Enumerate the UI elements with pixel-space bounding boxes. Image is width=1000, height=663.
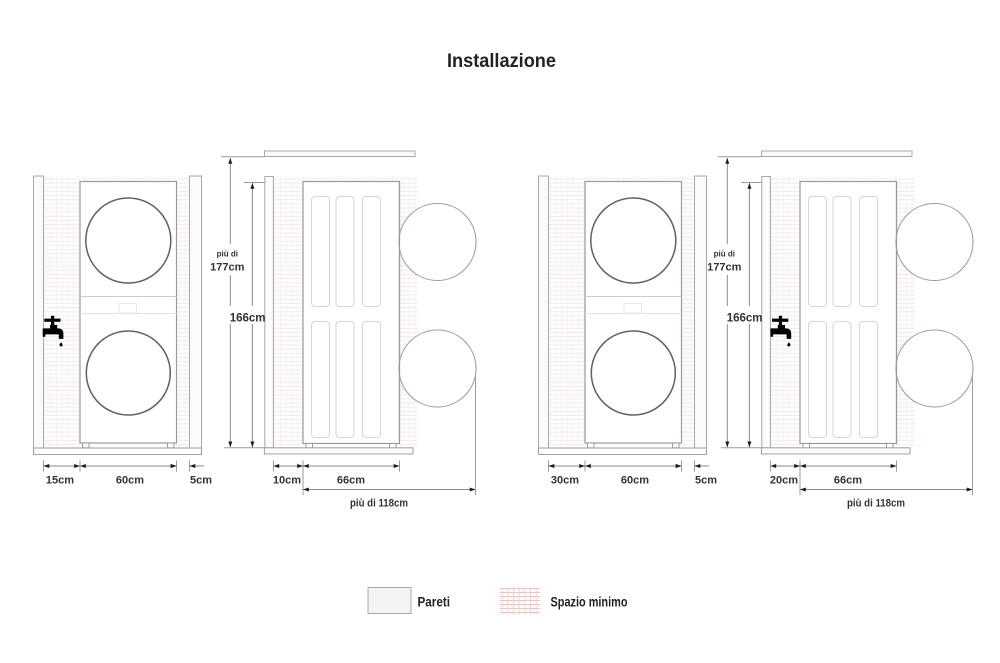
svg-text:20cm: 20cm	[770, 475, 798, 487]
svg-text:60cm: 60cm	[116, 475, 144, 487]
svg-text:66cm: 66cm	[834, 475, 862, 487]
svg-text:30cm: 30cm	[551, 475, 579, 487]
svg-text:166cm: 166cm	[727, 313, 763, 325]
svg-text:177cm: 177cm	[707, 262, 741, 274]
svg-text:più di: più di	[217, 250, 238, 259]
svg-text:Pareti: Pareti	[418, 595, 451, 610]
svg-text:60cm: 60cm	[621, 475, 649, 487]
svg-text:66cm: 66cm	[337, 475, 365, 487]
svg-text:Spazio minimo: Spazio minimo	[551, 595, 628, 610]
svg-text:più di 118cm: più di 118cm	[847, 498, 905, 510]
svg-text:177cm: 177cm	[210, 262, 244, 274]
svg-text:Installazione: Installazione	[447, 51, 556, 72]
svg-text:5cm: 5cm	[695, 475, 717, 487]
svg-text:più di 118cm: più di 118cm	[350, 498, 408, 510]
svg-text:5cm: 5cm	[190, 475, 212, 487]
svg-text:15cm: 15cm	[46, 475, 74, 487]
svg-text:più di: più di	[714, 250, 735, 259]
svg-text:10cm: 10cm	[273, 475, 301, 487]
svg-text:166cm: 166cm	[230, 313, 266, 325]
